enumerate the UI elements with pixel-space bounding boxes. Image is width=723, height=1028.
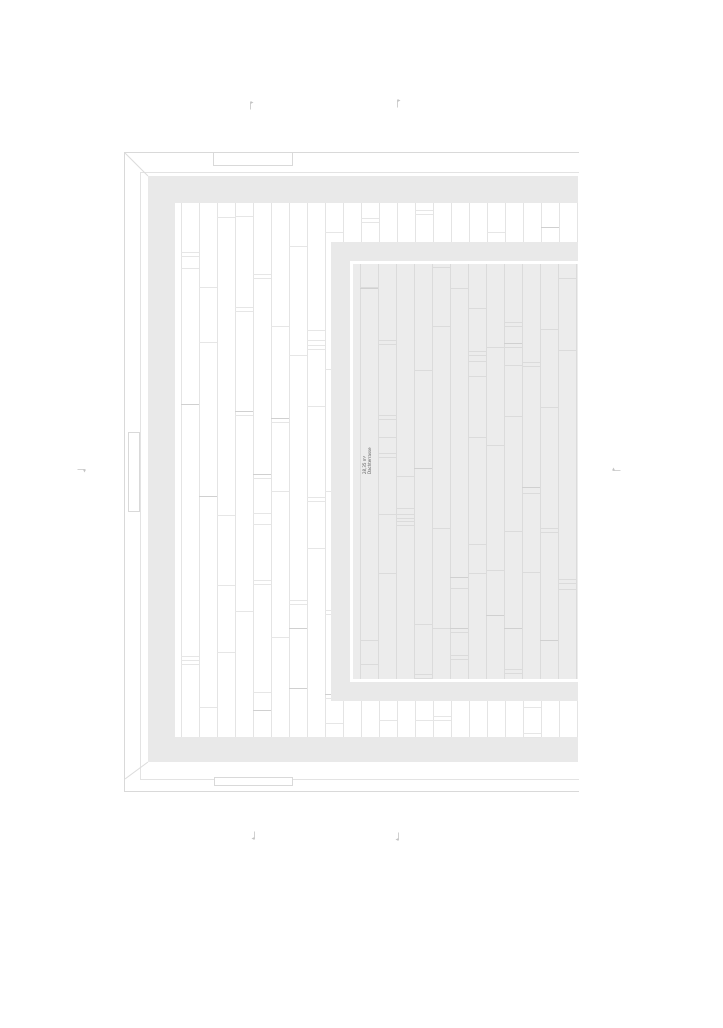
section-marker-top-right: [394, 93, 402, 103]
section-marker-left: [82, 466, 92, 474]
section-marker-bottom-left: [250, 836, 258, 846]
left-edge-notch: [128, 432, 140, 512]
bottom-edge-notch: [214, 777, 293, 786]
room-label: 28,35 m² Dachterrasse: [362, 444, 378, 474]
top-edge-notch: [213, 152, 293, 166]
section-marker-right: [606, 466, 616, 474]
section-marker-top-left: [247, 95, 255, 105]
frame-inner-line: [140, 172, 579, 780]
floor-plan-canvas: 28,35 m² Dachterrasse: [0, 0, 723, 1028]
section-marker-bottom-right: [394, 837, 402, 847]
room-label-name: Dachterrasse: [367, 444, 372, 474]
